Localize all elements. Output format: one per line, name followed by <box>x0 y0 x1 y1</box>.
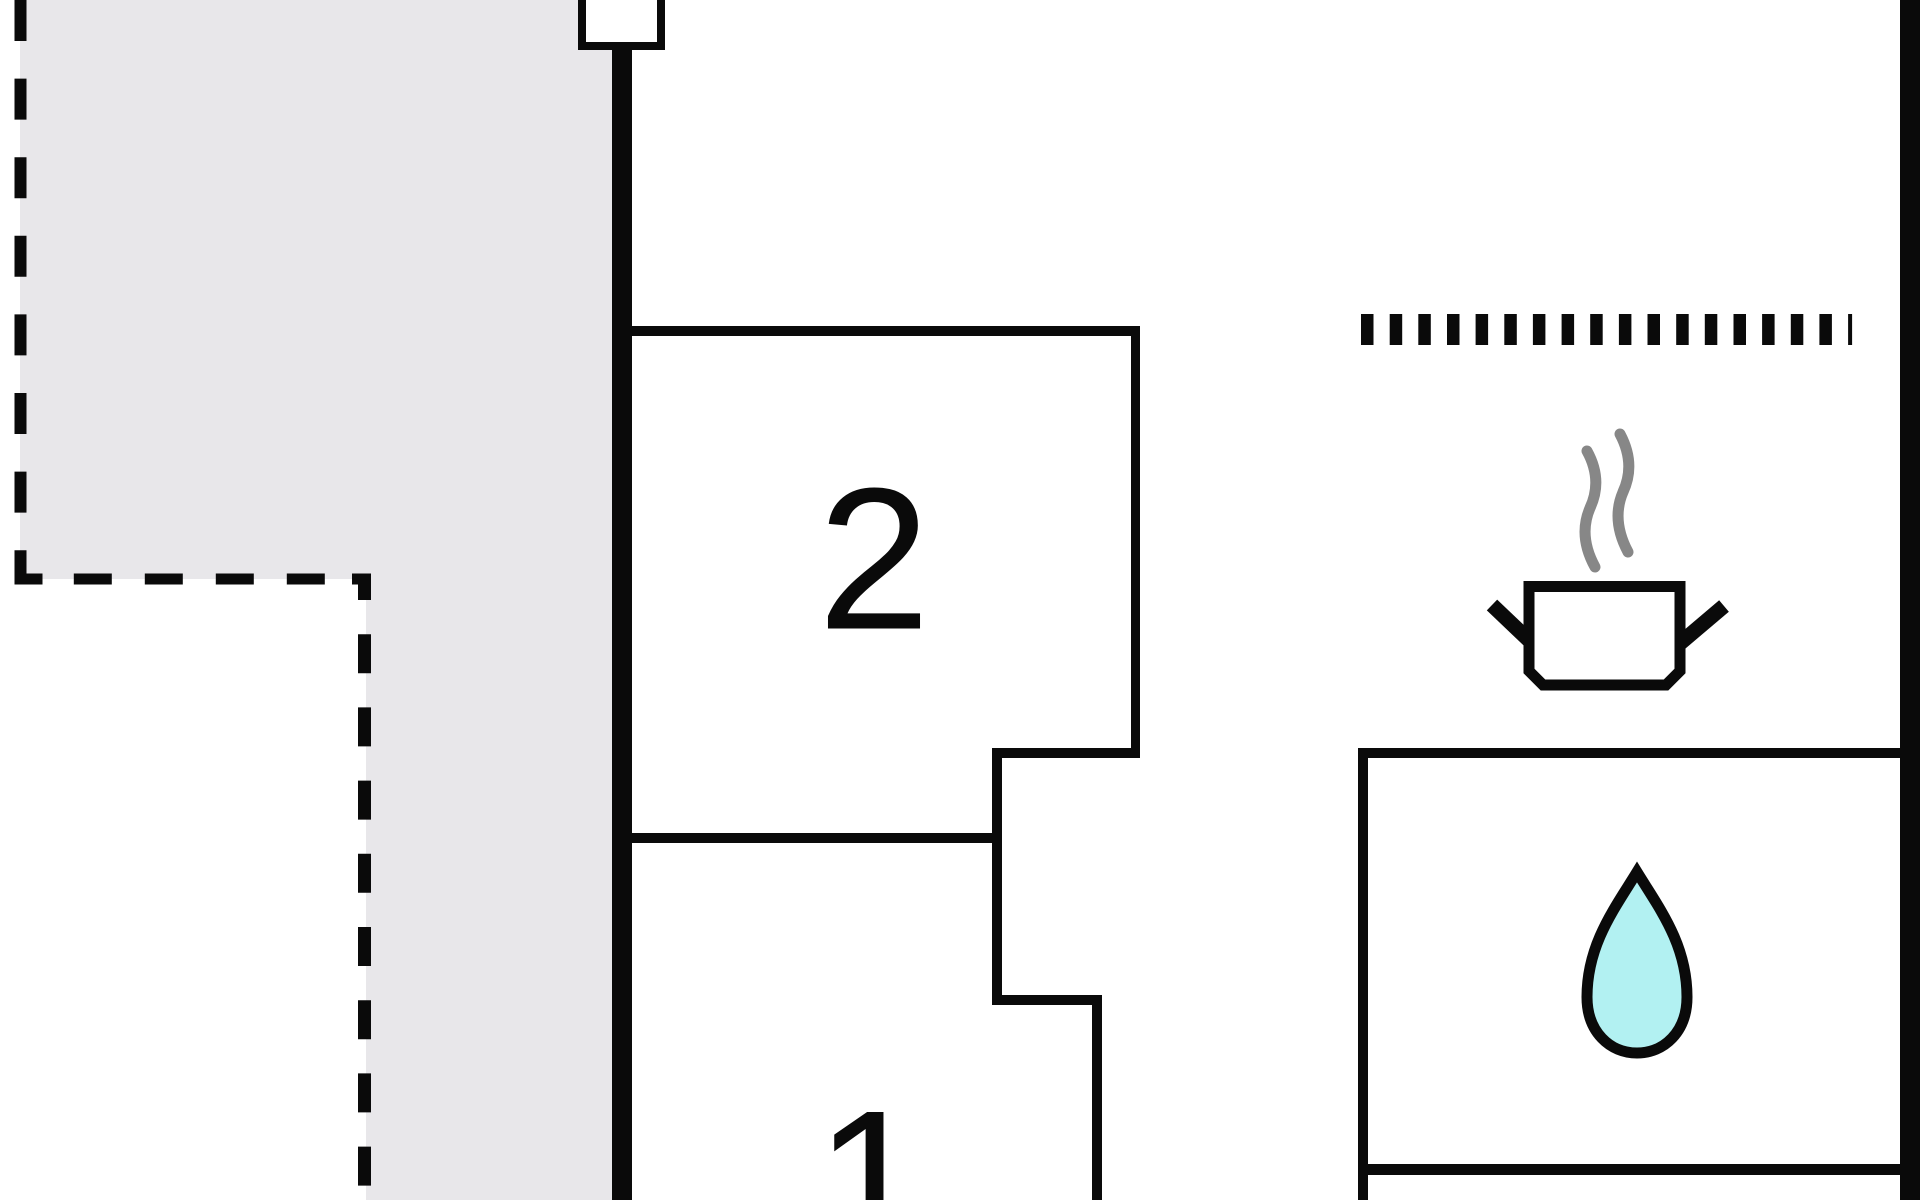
svg-text:1: 1 <box>815 1068 927 1200</box>
svg-text:2: 2 <box>818 446 930 672</box>
